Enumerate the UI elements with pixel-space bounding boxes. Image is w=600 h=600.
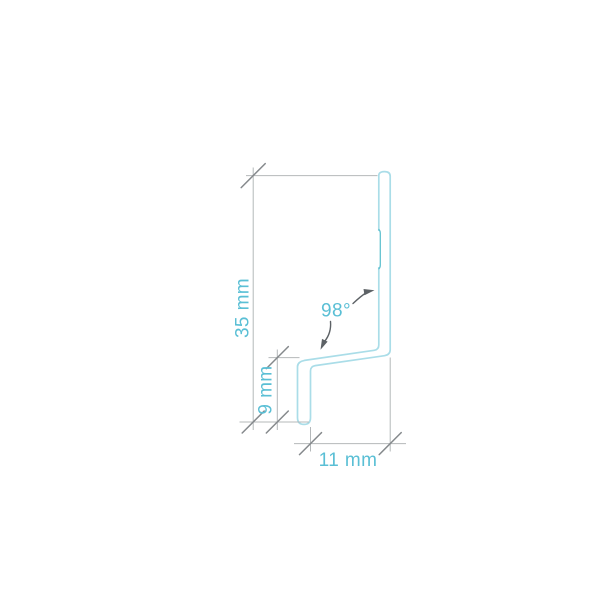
label-leg-height: 9 mm [256, 365, 277, 414]
angle-leader-to-wall [353, 289, 375, 304]
profile-outline [298, 172, 391, 425]
arrow-right-icon [364, 289, 375, 295]
profile-group [298, 172, 391, 425]
arrow-down-icon [321, 339, 328, 350]
label-base-width: 11 mm [319, 450, 378, 471]
technical-drawing: 35 mm 9 mm 11 mm 98° [0, 0, 600, 600]
label-overall-height: 35 mm [233, 278, 254, 338]
drawing-canvas: 35 mm 9 mm 11 mm 98° [0, 0, 600, 600]
label-bend-angle: 98° [321, 301, 351, 322]
angle-leader-to-flange [321, 322, 331, 350]
leader-line-lower [325, 322, 331, 342]
